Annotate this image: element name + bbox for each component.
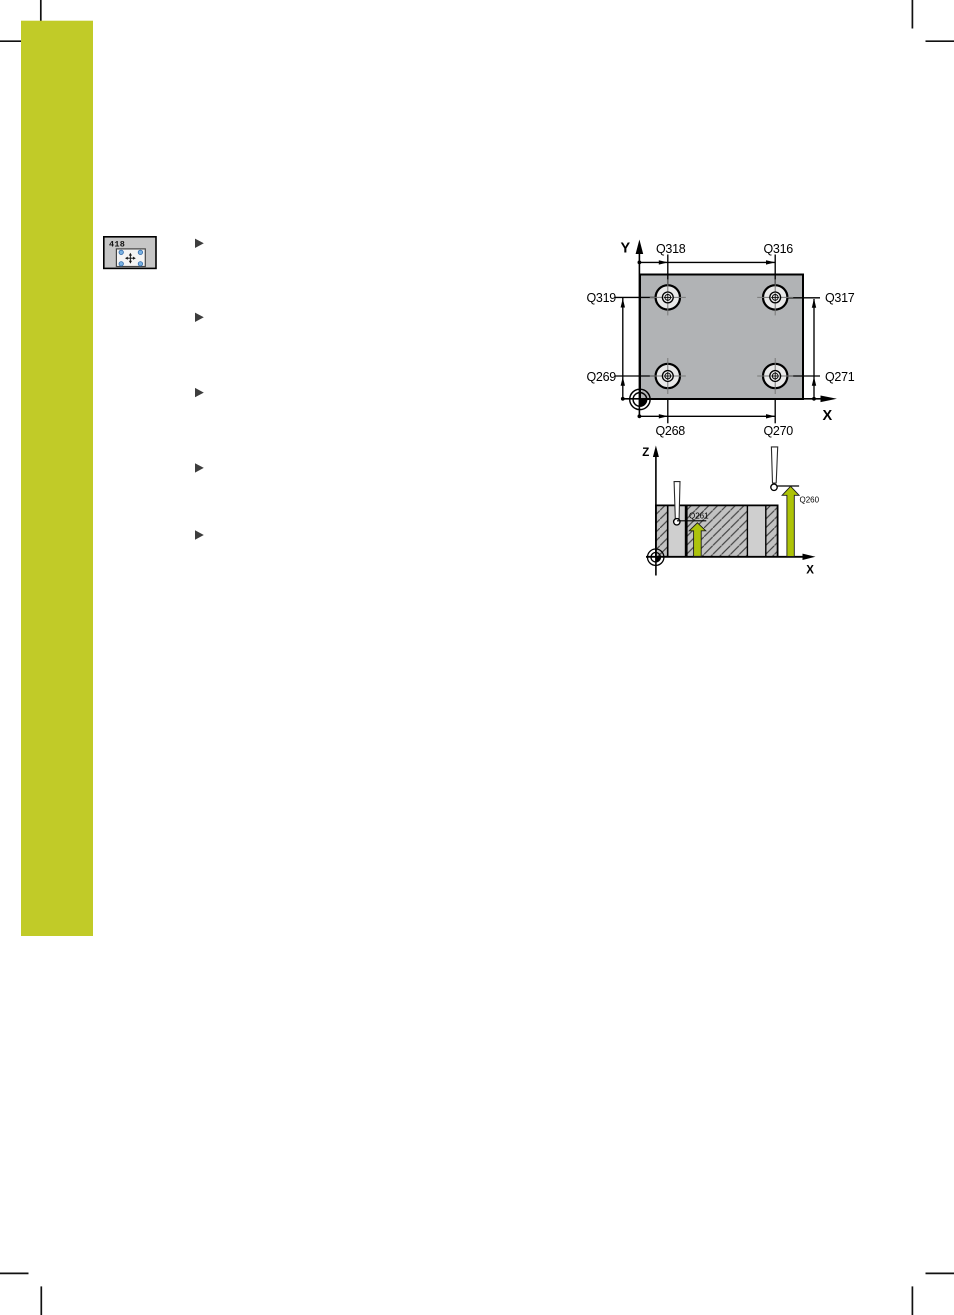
svg-text:Q270: Q270 [764,424,794,438]
svg-text:Q318: Q318 [656,242,686,256]
svg-text:Q316: Q316 [764,242,794,256]
svg-text:Q268: Q268 [656,424,686,438]
svg-text:Q271: Q271 [825,370,855,384]
svg-text:Q261: Q261 [689,512,709,521]
svg-text:X: X [823,408,833,424]
svg-text:Y: Y [621,240,631,256]
svg-text:Q319: Q319 [587,291,617,305]
svg-text:Q317: Q317 [825,291,855,305]
svg-text:Q260: Q260 [800,496,820,505]
svg-text:X: X [806,565,814,577]
svg-text:Q269: Q269 [587,370,617,384]
svg-text:418: 418 [109,240,125,250]
svg-text:Z: Z [642,447,649,459]
